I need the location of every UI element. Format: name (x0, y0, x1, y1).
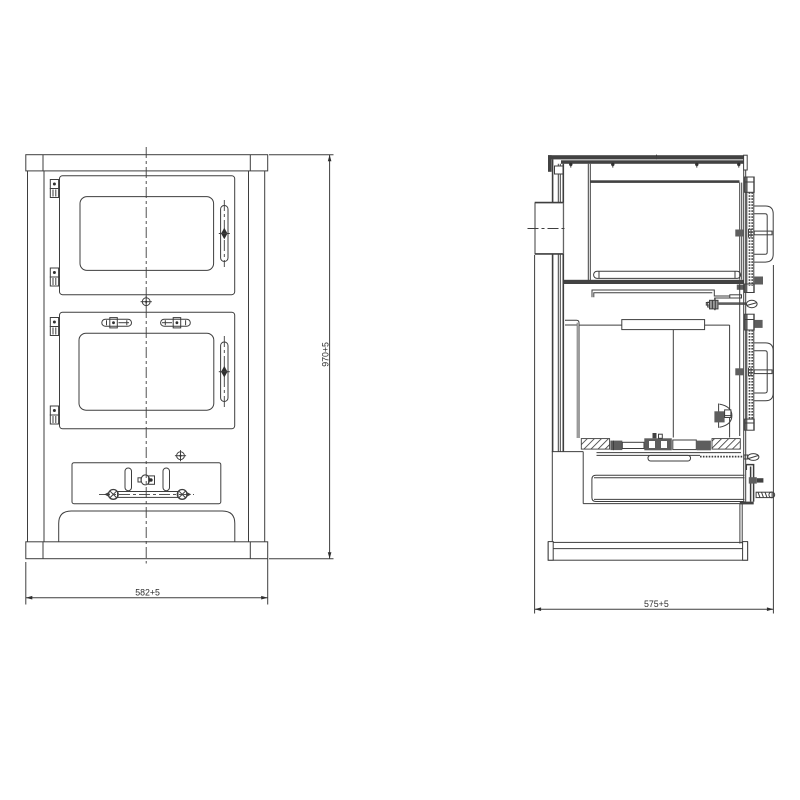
svg-text:575+5: 575+5 (644, 599, 669, 609)
svg-text:970+5: 970+5 (321, 342, 331, 367)
svg-text:582+5: 582+5 (135, 587, 160, 597)
